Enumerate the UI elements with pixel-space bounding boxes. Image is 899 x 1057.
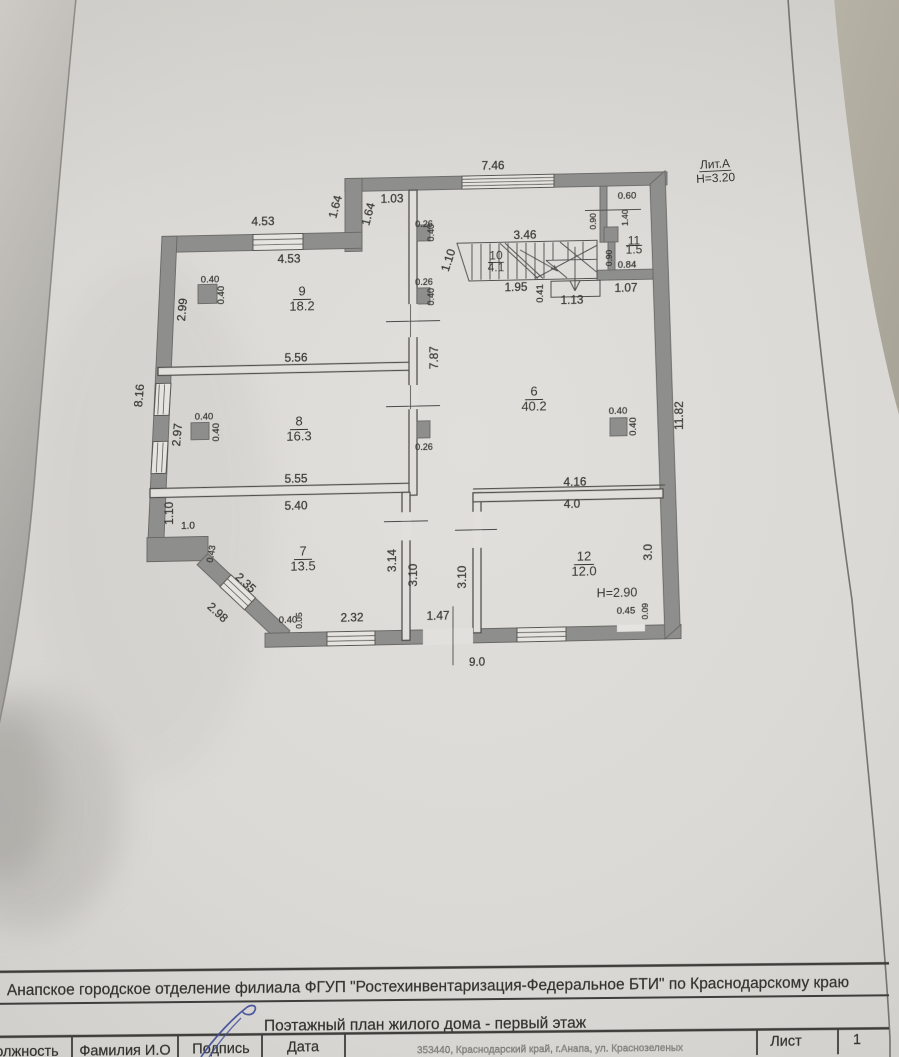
svg-text:1.5: 1.5	[626, 242, 643, 256]
svg-text:4.0: 4.0	[564, 497, 581, 511]
svg-text:0.41: 0.41	[535, 284, 546, 303]
svg-text:0.90: 0.90	[604, 249, 614, 266]
svg-text:0.60: 0.60	[618, 190, 636, 201]
svg-text:Лит.А: Лит.А	[700, 156, 731, 172]
svg-text:Лист: Лист	[770, 1034, 802, 1050]
svg-text:1.13: 1.13	[561, 293, 584, 307]
svg-text:0.45: 0.45	[617, 605, 635, 616]
svg-text:Дата: Дата	[287, 1039, 320, 1055]
svg-text:18.2: 18.2	[289, 298, 314, 314]
svg-text:0.40: 0.40	[426, 288, 436, 306]
svg-text:0.90: 0.90	[588, 213, 598, 230]
svg-text:0.40: 0.40	[216, 286, 227, 305]
svg-text:12: 12	[577, 548, 591, 563]
svg-text:1.10: 1.10	[162, 501, 176, 525]
svg-text:3.14: 3.14	[385, 549, 399, 573]
svg-text:16.3: 16.3	[286, 428, 311, 444]
svg-text:13.5: 13.5	[290, 558, 315, 574]
svg-text:3.46: 3.46	[514, 228, 537, 242]
svg-text:7.87: 7.87	[427, 346, 441, 369]
svg-text:0.40: 0.40	[628, 417, 639, 436]
svg-text:40.2: 40.2	[521, 398, 546, 414]
svg-text:Должность: Должность	[0, 1044, 59, 1057]
svg-text:5.40: 5.40	[285, 498, 308, 512]
svg-text:1.47: 1.47	[427, 608, 450, 622]
svg-text:1: 1	[853, 1032, 861, 1048]
svg-text:1.95: 1.95	[505, 280, 528, 294]
svg-text:11.82: 11.82	[672, 401, 686, 430]
svg-text:2.97: 2.97	[169, 423, 185, 447]
svg-text:2.32: 2.32	[341, 610, 364, 624]
svg-text:12.0: 12.0	[571, 563, 596, 579]
svg-text:Н=3.20: Н=3.20	[696, 170, 736, 186]
svg-text:6: 6	[530, 384, 537, 399]
svg-text:4.53: 4.53	[252, 214, 275, 228]
svg-text:0.26: 0.26	[415, 277, 433, 287]
svg-text:0.84: 0.84	[618, 259, 636, 270]
svg-text:4.53: 4.53	[278, 251, 301, 265]
svg-text:9.0: 9.0	[469, 657, 485, 669]
svg-text:3.10: 3.10	[406, 563, 420, 587]
svg-text:0.40: 0.40	[426, 224, 436, 242]
svg-text:0.26: 0.26	[415, 442, 433, 452]
svg-text:5.55: 5.55	[285, 471, 308, 485]
svg-text:3.0: 3.0	[641, 543, 655, 560]
svg-text:8.16: 8.16	[131, 383, 147, 407]
svg-text:0.05: 0.05	[294, 612, 304, 629]
svg-text:2.99: 2.99	[174, 298, 190, 322]
svg-text:0.40: 0.40	[211, 423, 222, 442]
svg-text:1.03: 1.03	[381, 191, 404, 205]
svg-text:8: 8	[295, 413, 302, 428]
svg-text:3.10: 3.10	[455, 565, 469, 589]
svg-text:H=2.90: H=2.90	[597, 585, 638, 600]
svg-text:Фамилия И.О: Фамилия И.О	[79, 1043, 170, 1057]
svg-text:0.40: 0.40	[609, 406, 627, 417]
svg-text:1.40: 1.40	[620, 209, 630, 226]
svg-text:1.0: 1.0	[181, 521, 195, 532]
svg-text:0.40: 0.40	[195, 411, 213, 422]
svg-text:7: 7	[299, 543, 306, 558]
svg-text:5.56: 5.56	[285, 350, 308, 364]
svg-text:7.46: 7.46	[482, 158, 505, 172]
svg-text:0.40: 0.40	[201, 274, 219, 285]
svg-text:Подпись: Подпись	[192, 1041, 249, 1057]
svg-text:0.09: 0.09	[640, 603, 650, 620]
svg-text:1.07: 1.07	[615, 280, 638, 294]
svg-text:9: 9	[298, 283, 305, 298]
svg-text:4.16: 4.16	[564, 475, 587, 489]
